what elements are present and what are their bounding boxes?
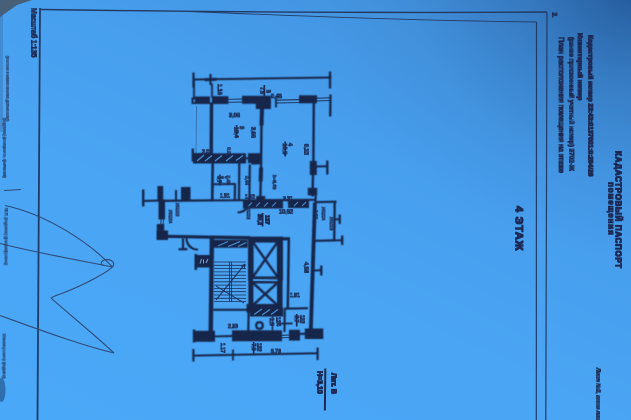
svg-text:7,5: 7,5 xyxy=(259,87,265,94)
svg-text:Кадастровый номер 23:43:013700: Кадастровый номер 23:43:0137001:0:294/29 xyxy=(587,35,595,177)
svg-text:30,2: 30,2 xyxy=(256,214,262,225)
svg-text:М.П. (подпись) (расшифровка): М.П. (подпись) (расшифровка) xyxy=(4,208,9,266)
svg-text:6,73: 6,73 xyxy=(271,349,281,355)
svg-text:Ж6204: Ж6204 xyxy=(168,210,173,224)
svg-text:7,3: 7,3 xyxy=(250,344,256,351)
svg-text:5: 5 xyxy=(265,90,271,93)
svg-text:6,22: 6,22 xyxy=(303,144,309,155)
svg-text:3,06: 3,06 xyxy=(229,113,240,119)
svg-text:127: 127 xyxy=(264,215,270,224)
svg-text:6,45: 6,45 xyxy=(271,94,282,100)
svg-text:19,9: 19,9 xyxy=(281,144,287,155)
svg-text:4,58: 4,58 xyxy=(303,262,309,273)
svg-text:(ранее присвоенный учетный ном: (ранее присвоенный учетный номер) 3702-Ж xyxy=(568,37,576,171)
svg-text:1,16: 1,16 xyxy=(216,84,222,95)
svg-text:124: 124 xyxy=(275,317,281,326)
svg-text:Н=3,10: Н=3,10 xyxy=(316,371,323,394)
svg-text:3,21: 3,21 xyxy=(283,197,293,203)
svg-text:1,81: 1,81 xyxy=(290,293,300,299)
svg-text:Ж6202: Ж6202 xyxy=(175,203,180,217)
svg-text:1,9: 1,9 xyxy=(268,318,274,326)
svg-text:3,66: 3,66 xyxy=(250,127,256,138)
svg-text:10,4: 10,4 xyxy=(233,127,239,138)
svg-text:2,06: 2,06 xyxy=(314,210,319,219)
svg-text:Ж6204: Ж6204 xyxy=(321,207,326,221)
svg-text:2,43: 2,43 xyxy=(226,176,231,185)
svg-text:2,7: 2,7 xyxy=(293,316,299,323)
svg-text:2.: 2. xyxy=(551,13,558,18)
svg-text:Масштаб 1:135: Масштаб 1:135 xyxy=(30,8,38,58)
svg-text:Ж6203: Ж6203 xyxy=(329,217,334,231)
svg-text:(подпись) (инициалы, фамилия): (подпись) (инициалы, фамилия) xyxy=(3,118,8,178)
svg-text:Инвентаризатор (подпись): Инвентаризатор (подпись) xyxy=(2,334,6,378)
svg-text:1,52: 1,52 xyxy=(245,195,255,201)
svg-text:План расположения помещения на: План расположения помещения на этаже xyxy=(557,37,564,173)
svg-text:0,20: 0,20 xyxy=(227,148,232,157)
svg-text:2,00: 2,00 xyxy=(202,150,212,156)
svg-text:2,39: 2,39 xyxy=(228,324,238,330)
svg-text:Лит. В: Лит. В xyxy=(330,373,337,394)
svg-text:Лист №2, всего листов 2: Лист №2, всего листов 2 xyxy=(595,367,601,420)
svg-text:помещения: помещения xyxy=(607,182,616,236)
svg-text:1,17: 1,17 xyxy=(219,343,225,353)
svg-text:1,51: 1,51 xyxy=(220,194,230,200)
svg-text:(полное наименование должности: (полное наименование должности) xyxy=(6,56,11,122)
svg-text:2,44: 2,44 xyxy=(245,176,250,185)
svg-text:b=0,48: b=0,48 xyxy=(272,175,277,190)
svg-text:Инвентарный номер: Инвентарный номер xyxy=(576,33,584,100)
svg-text:Ж6203: Ж6203 xyxy=(246,206,251,220)
svg-text:10,92: 10,92 xyxy=(279,210,293,216)
svg-text:3,7: 3,7 xyxy=(216,176,222,183)
svg-text:4 ЭТАЖ: 4 ЭТАЖ xyxy=(513,206,525,251)
